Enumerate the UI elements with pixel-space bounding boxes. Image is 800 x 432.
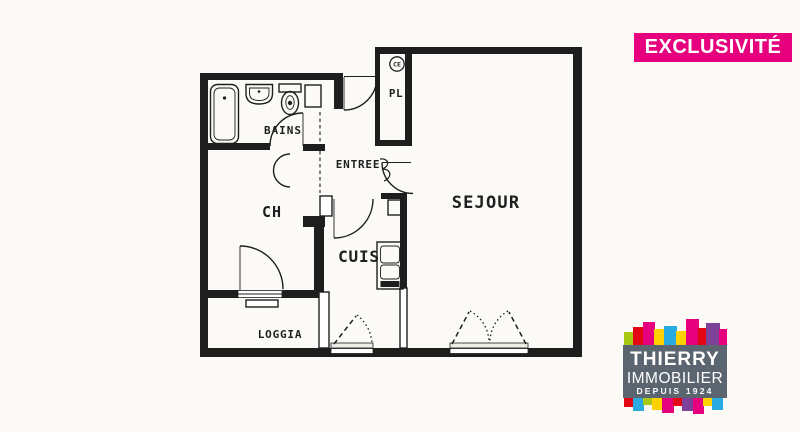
wall-sejour-west-lower	[400, 288, 407, 348]
sejour-window-leaf-left	[452, 312, 469, 344]
wall-loggia-north-right	[282, 290, 324, 298]
water-heater-label: CE	[393, 61, 401, 69]
exclusivity-badge: EXCLUSIVITÉ	[634, 33, 792, 62]
wall-loggia-east	[319, 292, 329, 348]
wall-ch-east-stub	[303, 216, 325, 227]
wall-pl-left	[375, 54, 380, 142]
room-label-entree: ENTREE	[336, 158, 381, 171]
water-heater-symbol: CE	[390, 57, 404, 71]
duct-shaft	[320, 196, 332, 216]
room-label-ch: CH	[262, 203, 282, 221]
bathtub-drain	[223, 96, 226, 99]
scanned-floorplan-page: CE BAINS CH ENTREE PL SEJOUR CUIS LOGGIA…	[0, 0, 800, 432]
sejour-door-arc	[382, 163, 413, 194]
entry-door-arc	[344, 77, 377, 110]
wall-pl-right	[405, 54, 412, 142]
ch-loggia-door-arc	[240, 246, 283, 289]
toilet	[279, 84, 301, 115]
kitchen-window-sill	[331, 343, 373, 348]
kitchen-door-arc	[334, 199, 373, 238]
kitchen-window	[331, 349, 373, 354]
wall-left	[200, 73, 208, 357]
kitchen-window-swing-arc	[357, 315, 372, 343]
wall-entry-jamb	[334, 73, 343, 109]
sejour-window-swing-arc-left	[470, 311, 489, 343]
room-label-bains: BAINS	[264, 124, 302, 137]
wall-pl-bottom	[375, 140, 412, 146]
bathroom-cabinet	[305, 85, 321, 107]
sejour-window-sill	[450, 343, 528, 348]
door-swings	[240, 77, 413, 290]
washbasin	[246, 85, 273, 105]
kitchen-sink	[377, 242, 403, 289]
wall-top-right	[375, 47, 582, 54]
room-label-sejour: SEJOUR	[452, 193, 521, 213]
logo-skyline-bottom	[624, 398, 723, 414]
room-label-loggia: LOGGIA	[258, 328, 303, 341]
sejour-window-leaf-right	[509, 312, 526, 344]
loggia-window-sill	[246, 300, 278, 307]
wall-bains-bottom-right	[303, 144, 325, 151]
logo-name: THIERRY	[630, 349, 720, 370]
logo-line2: IMMOBILIER	[627, 370, 723, 387]
kitchen-sink-basin-bottom	[381, 265, 400, 279]
wall-top-left	[200, 73, 343, 80]
logo-skyline-top	[624, 319, 727, 345]
kitchen-sink-drainer	[381, 281, 400, 287]
room-label-pl: PL	[389, 87, 403, 100]
sejour-window-swing-arc-right	[490, 311, 508, 343]
ch-door-arc	[274, 154, 291, 187]
kitchen-sink-basin-top	[381, 246, 400, 263]
kitchen-window-leaf	[334, 316, 356, 344]
room-label-cuis: CUIS	[338, 247, 380, 266]
agency-logo: THIERRY IMMOBILIER DEPUIS 1924	[616, 316, 752, 416]
sejour-window	[450, 349, 528, 354]
wall-right	[573, 47, 582, 357]
bathtub	[211, 85, 239, 144]
logo-line3: DEPUIS 1924	[636, 386, 713, 396]
wall-loggia-north-left	[200, 290, 238, 298]
wall-ch-east	[314, 227, 324, 290]
washbasin-drain	[258, 90, 261, 93]
windows	[238, 291, 528, 354]
